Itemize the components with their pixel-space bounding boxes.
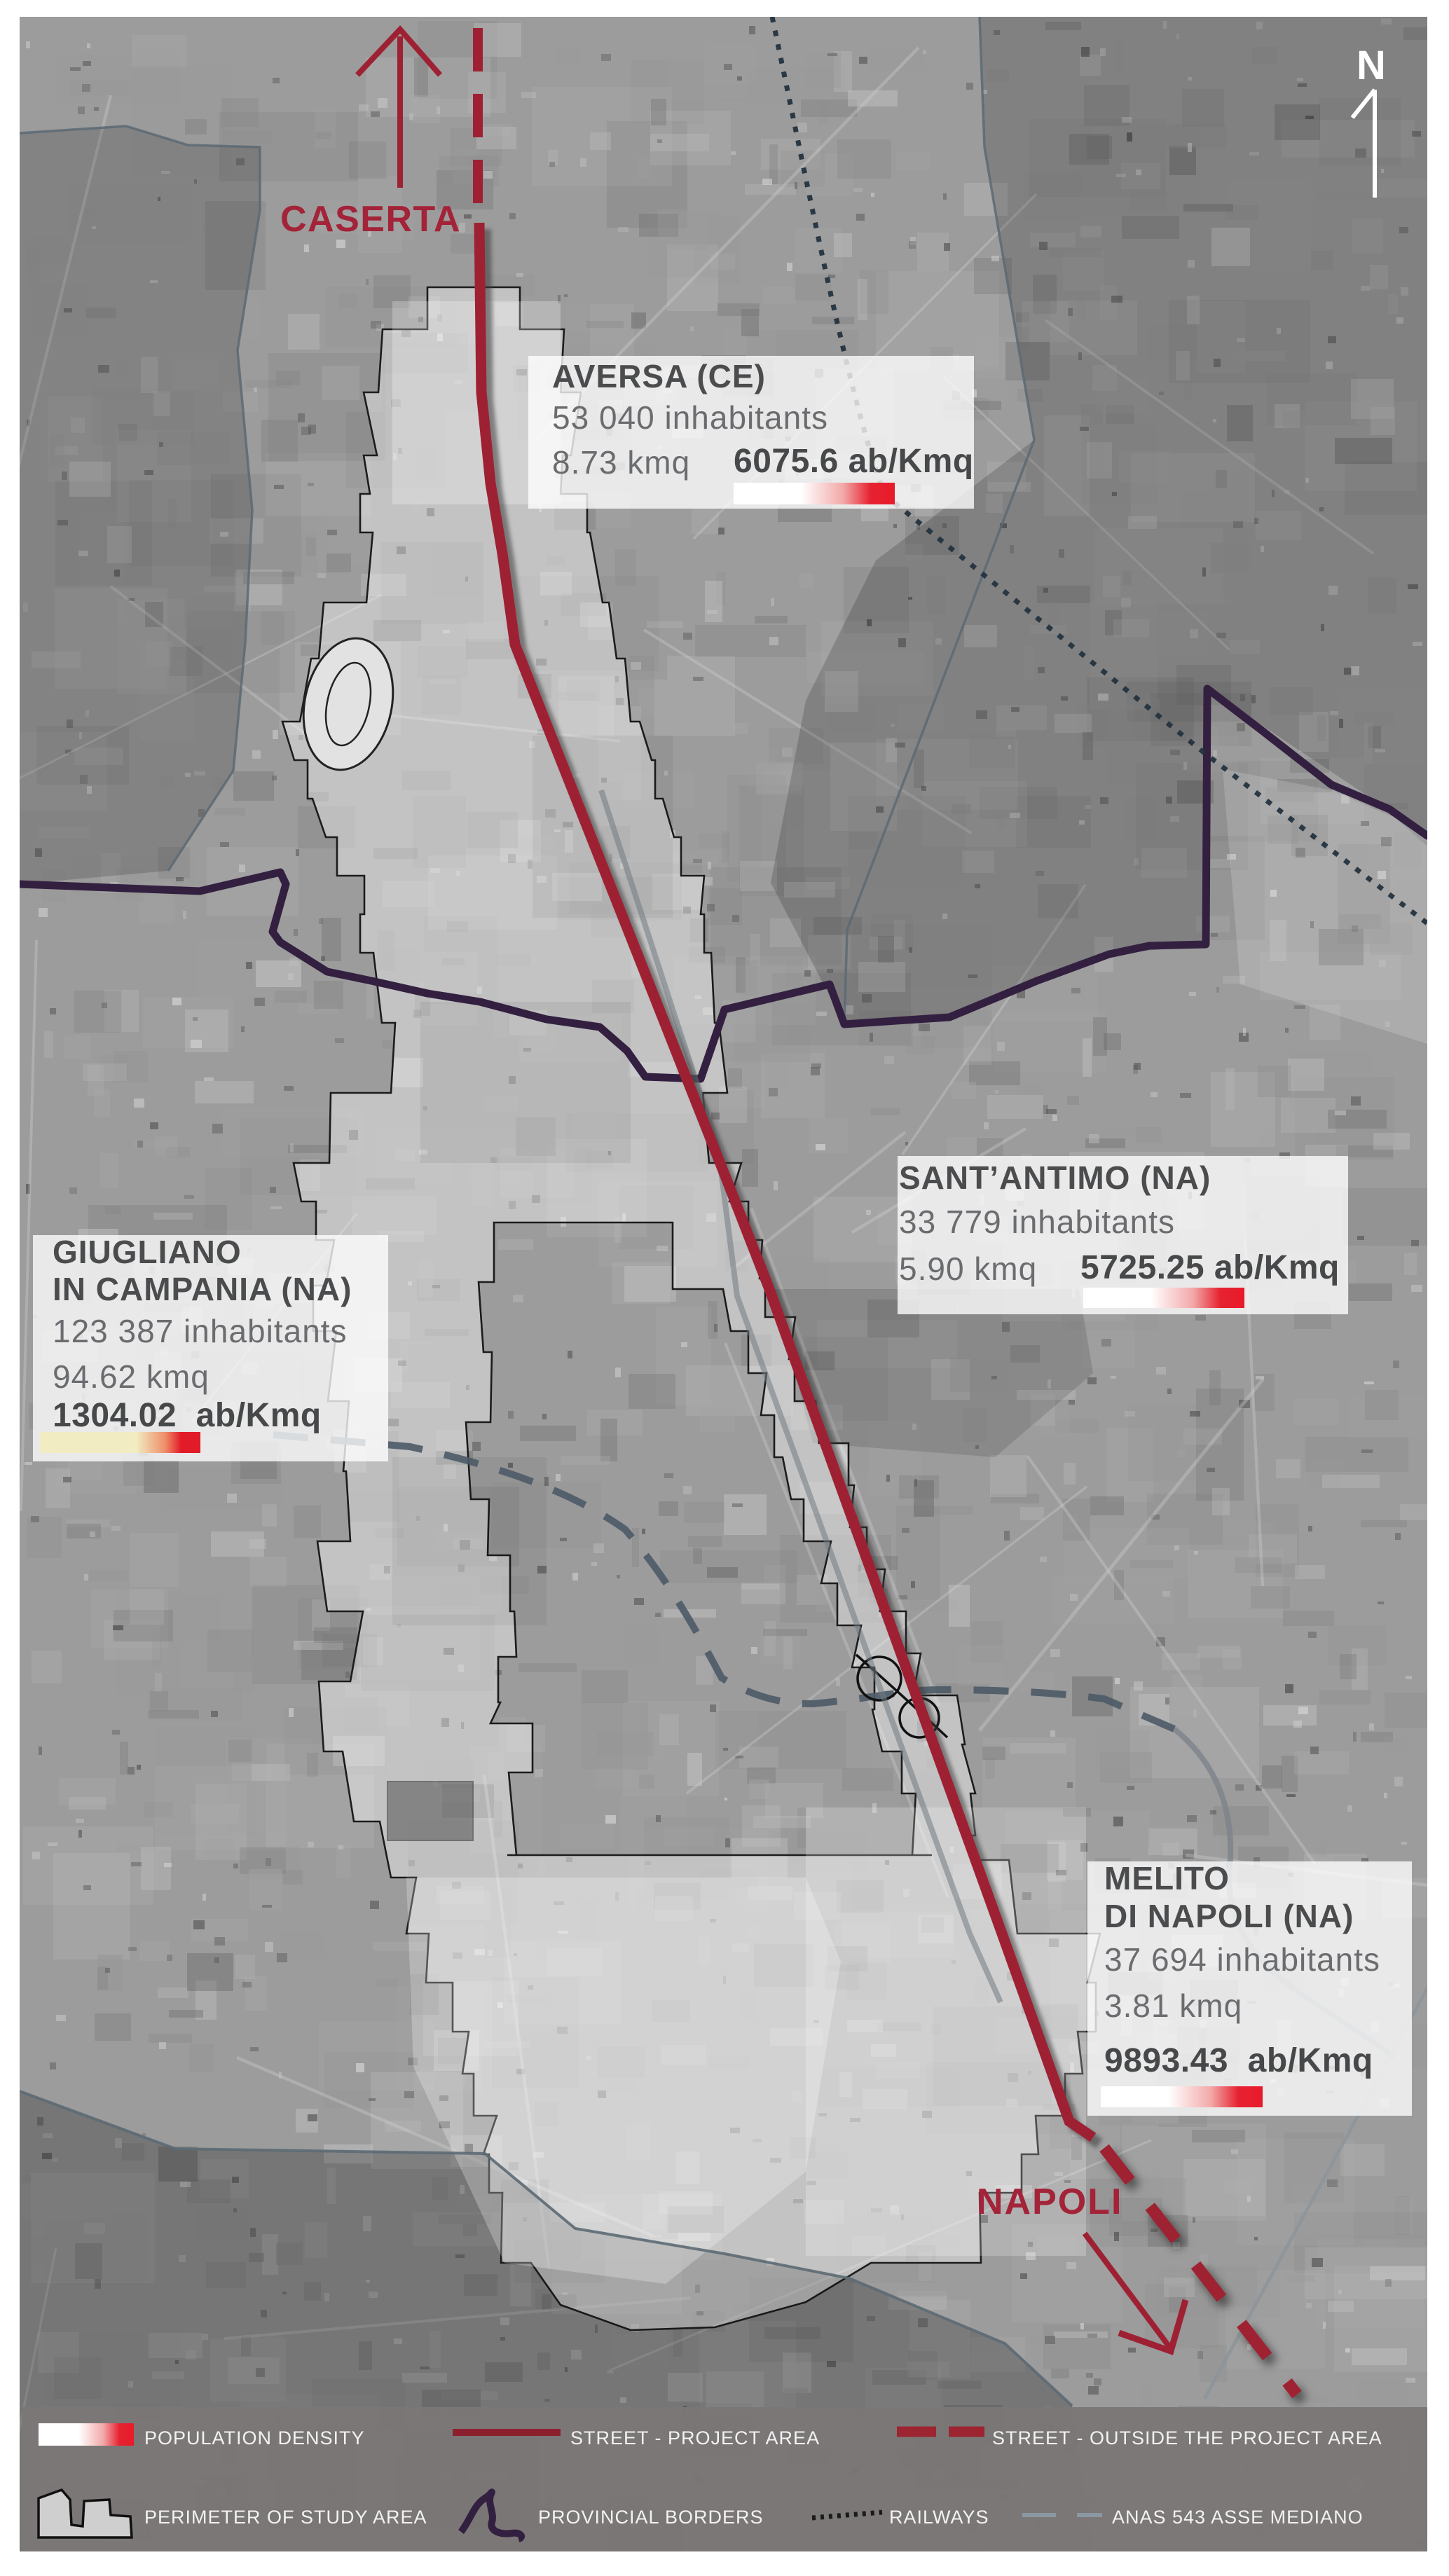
svg-text:MELITO: MELITO — [1104, 1860, 1230, 1896]
svg-text:53 040 inhabitants: 53 040 inhabitants — [552, 399, 828, 436]
svg-text:5.90 kmq: 5.90 kmq — [899, 1251, 1037, 1287]
svg-text:123 387 inhabitants: 123 387 inhabitants — [53, 1313, 348, 1349]
svg-text:STREET - PROJECT AREA: STREET - PROJECT AREA — [570, 2427, 820, 2448]
svg-text:DI NAPOLI (NA): DI NAPOLI (NA) — [1104, 1898, 1354, 1934]
svg-text:33 779 inhabitants: 33 779 inhabitants — [899, 1204, 1175, 1240]
svg-text:ANAS 543 ASSE MEDIANO: ANAS 543 ASSE MEDIANO — [1112, 2507, 1364, 2528]
svg-text:5725.25 ab/Kmq: 5725.25 ab/Kmq — [1080, 1249, 1340, 1286]
svg-text:N: N — [1357, 43, 1386, 88]
svg-text:SANT’ANTIMO (NA): SANT’ANTIMO (NA) — [899, 1159, 1211, 1196]
svg-text:8.73 kmq: 8.73 kmq — [552, 444, 690, 481]
svg-text:94.62 kmq: 94.62 kmq — [53, 1358, 210, 1395]
svg-text:GIUGLIANO: GIUGLIANO — [53, 1234, 242, 1270]
svg-text:CASERTA: CASERTA — [280, 199, 461, 240]
svg-text:6075.6 ab/Kmq: 6075.6 ab/Kmq — [734, 443, 974, 480]
svg-text:POPULATION DENSITY: POPULATION DENSITY — [144, 2427, 365, 2448]
svg-text:PROVINCIAL BORDERS: PROVINCIAL BORDERS — [538, 2507, 764, 2528]
svg-text:RAILWAYS: RAILWAYS — [889, 2507, 989, 2528]
svg-text:PERIMETER OF STUDY AREA: PERIMETER OF STUDY AREA — [144, 2507, 427, 2528]
svg-text:37 694 inhabitants: 37 694 inhabitants — [1104, 1941, 1380, 1978]
svg-text:9893.43 ab/Kmq: 9893.43 ab/Kmq — [1104, 2042, 1373, 2079]
svg-text:IN CAMPANIA (NA): IN CAMPANIA (NA) — [53, 1271, 352, 1307]
svg-text:3.81 kmq: 3.81 kmq — [1104, 1988, 1242, 2024]
svg-text:STREET - OUTSIDE THE PROJECT A: STREET - OUTSIDE THE PROJECT AREA — [992, 2427, 1382, 2448]
svg-text:AVERSA (CE): AVERSA (CE) — [552, 358, 766, 394]
svg-text:1304.02 ab/Kmq: 1304.02 ab/Kmq — [53, 1397, 322, 1434]
svg-text:NAPOLI: NAPOLI — [977, 2182, 1122, 2222]
